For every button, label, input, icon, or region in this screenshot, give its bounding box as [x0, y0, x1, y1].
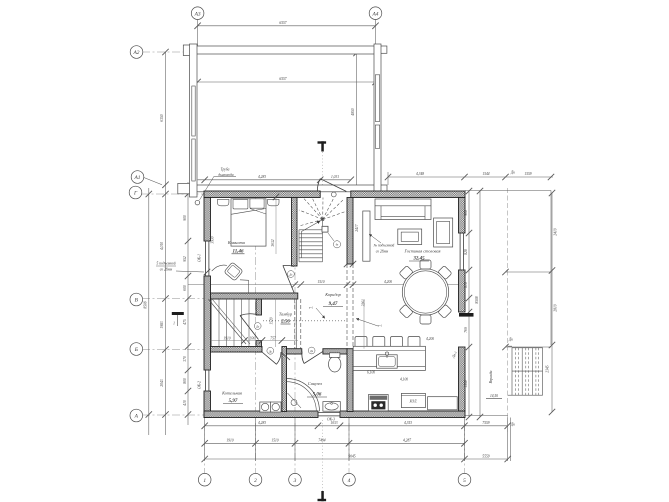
- svg-text:757: 757: [270, 337, 276, 341]
- svg-text:475: 475: [183, 319, 187, 325]
- svg-text:8508: 8508: [144, 301, 148, 308]
- svg-text:Тамбур: Тамбур: [279, 312, 293, 317]
- svg-text:818: 818: [464, 282, 468, 288]
- svg-text:1520: 1520: [269, 317, 273, 324]
- svg-text:Санузел: Санузел: [308, 381, 323, 386]
- svg-text:1538: 1538: [464, 380, 468, 387]
- svg-text:769: 769: [464, 327, 468, 333]
- svg-text:6557: 6557: [279, 21, 286, 25]
- svg-text:6350: 6350: [160, 114, 164, 121]
- svg-text:8508: 8508: [475, 296, 479, 303]
- svg-text:Котельная: Котельная: [221, 391, 242, 396]
- svg-text:в=1: в=1: [378, 325, 383, 328]
- svg-text:6557: 6557: [279, 77, 286, 81]
- svg-text:908: 908: [464, 210, 468, 216]
- svg-text:370: 370: [183, 356, 187, 362]
- svg-text:7494: 7494: [318, 439, 325, 443]
- svg-text:со 28мм: со 28мм: [160, 268, 173, 272]
- svg-text:ХОЛ.: ХОЛ.: [408, 400, 417, 404]
- svg-text:3: 3: [293, 478, 297, 484]
- svg-text:4: 4: [348, 478, 351, 484]
- svg-text:3261: 3261: [362, 299, 366, 306]
- svg-text:1: 1: [173, 322, 175, 326]
- svg-text:5 подъемной: 5 подъемной: [156, 261, 175, 266]
- svg-text:9045: 9045: [348, 454, 355, 458]
- svg-text:Комната: Комната: [227, 240, 245, 245]
- svg-text:со 28мм: со 28мм: [376, 250, 389, 254]
- svg-text:Коридор: Коридор: [324, 292, 341, 297]
- svg-text:600: 600: [183, 285, 187, 291]
- svg-text:Веранда: Веранда: [489, 370, 493, 383]
- svg-text:Дк: Дк: [508, 338, 513, 342]
- svg-text:А3: А3: [194, 11, 201, 17]
- svg-text:1510: 1510: [317, 280, 324, 284]
- svg-text:1559: 1559: [524, 172, 531, 176]
- svg-text:Гостиная столовая: Гостиная столовая: [404, 249, 441, 254]
- svg-text:дымохода: дымохода: [218, 173, 233, 177]
- svg-text:ОК-1: ОК-1: [198, 254, 202, 262]
- svg-text:4850: 4850: [351, 108, 355, 115]
- svg-text:5: 5: [463, 478, 466, 484]
- svg-text:Дк: Дк: [510, 423, 515, 427]
- svg-text:1910: 1910: [226, 439, 233, 443]
- svg-text:7559: 7559: [482, 421, 489, 425]
- svg-text:1033: 1033: [330, 421, 337, 425]
- svg-text:Труба: Труба: [221, 168, 230, 172]
- svg-text:1983: 1983: [160, 321, 164, 328]
- svg-text:952: 952: [183, 256, 187, 262]
- svg-text:1544: 1544: [482, 172, 489, 176]
- svg-text:2417: 2417: [355, 224, 359, 231]
- svg-text:1910: 1910: [223, 337, 230, 341]
- svg-text:3632: 3632: [271, 239, 275, 246]
- svg-text:930: 930: [250, 337, 256, 341]
- svg-text:А2: А2: [133, 50, 140, 56]
- svg-text:ОК-3: ОК-3: [327, 417, 335, 421]
- svg-text:ОК-2: ОК-2: [198, 381, 202, 389]
- svg-text:828: 828: [464, 249, 468, 255]
- svg-text:410: 410: [183, 400, 187, 406]
- svg-text:800: 800: [183, 378, 187, 384]
- svg-text:А1: А1: [134, 175, 141, 181]
- svg-text:2: 2: [254, 478, 257, 484]
- svg-text:2345: 2345: [546, 365, 550, 372]
- svg-text:1: 1: [203, 478, 206, 484]
- svg-text:Дк: Дк: [510, 171, 515, 175]
- svg-text:3930: 3930: [211, 236, 215, 243]
- svg-text:2810: 2810: [554, 304, 558, 311]
- svg-text:900: 900: [183, 215, 187, 221]
- svg-text:А4: А4: [372, 11, 379, 17]
- svg-text:А: А: [134, 414, 139, 420]
- svg-text:1510: 1510: [271, 439, 278, 443]
- svg-text:2410: 2410: [554, 228, 558, 235]
- svg-text:№ подъемной: № подъемной: [373, 243, 395, 248]
- svg-text:5559: 5559: [482, 454, 489, 458]
- svg-text:2043: 2043: [160, 379, 164, 386]
- svg-text:в=1: в=1: [309, 307, 314, 310]
